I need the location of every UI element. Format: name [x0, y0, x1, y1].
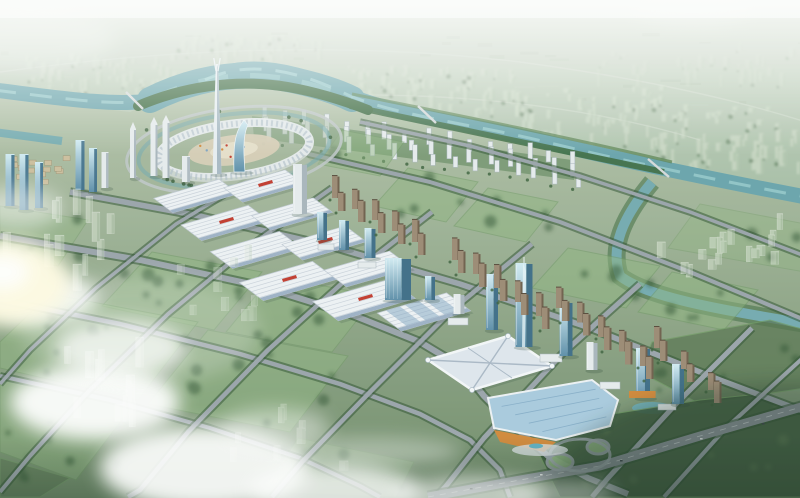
color-tint	[0, 0, 800, 498]
atmosphere-layer	[0, 0, 800, 498]
aerial-masterplan-rendering	[0, 0, 800, 498]
city-rendering-canvas	[0, 0, 800, 498]
